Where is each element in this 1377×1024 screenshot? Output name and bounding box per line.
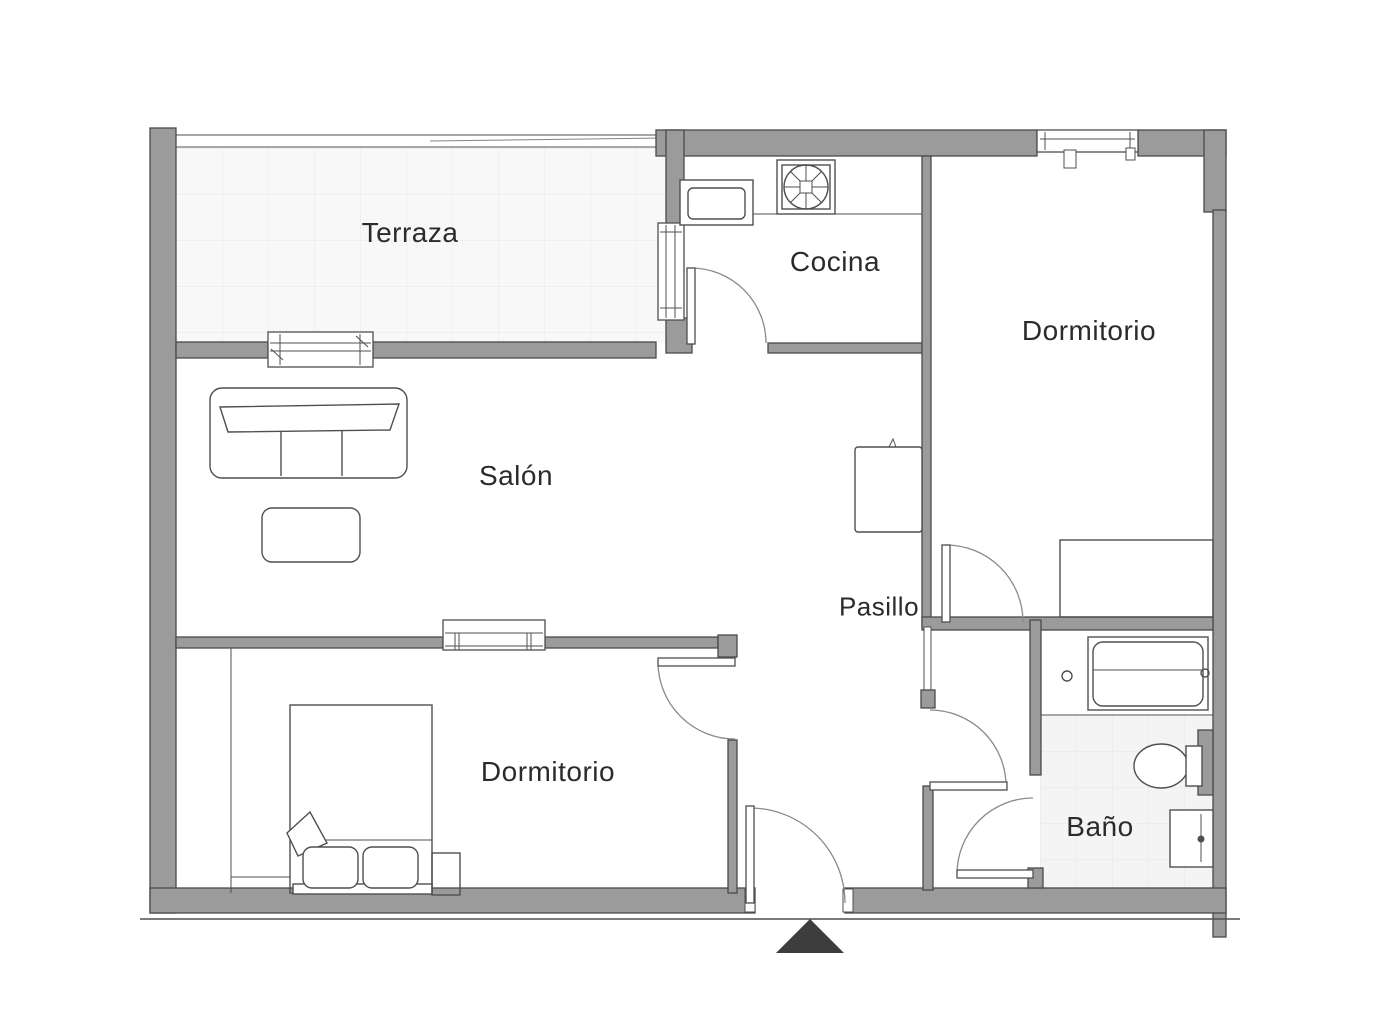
living-bedroom-window xyxy=(443,620,545,650)
room-label-bano: Baño xyxy=(1066,811,1133,843)
balcony-railing xyxy=(176,135,664,147)
room-label-terraza: Terraza xyxy=(362,217,459,249)
entrance-door xyxy=(745,806,853,912)
toilet xyxy=(1134,744,1202,788)
tap xyxy=(1062,671,1072,681)
floor-plan-drawing xyxy=(0,0,1377,1024)
bathtub xyxy=(1062,637,1209,710)
bed-cushion xyxy=(303,847,358,888)
dresser xyxy=(1060,540,1213,617)
hallway-vestibule-door xyxy=(930,710,1007,790)
cooktop xyxy=(777,160,835,214)
coffee-table xyxy=(262,508,360,562)
room-label-pasillo: Pasillo xyxy=(839,592,919,623)
right-wall-upper xyxy=(1204,130,1226,212)
washbasin xyxy=(1170,810,1213,867)
bedroom-window xyxy=(1037,130,1138,168)
toilet-tank xyxy=(1186,746,1202,786)
room-label-cocina: Cocina xyxy=(790,246,880,278)
left-wall xyxy=(150,128,176,913)
floor-plan: Terraza Cocina Dormitorio Salón Pasillo … xyxy=(0,0,1377,1024)
kitchen-sink xyxy=(680,180,753,225)
bottom-wall-right xyxy=(845,888,1226,913)
kitchen-door xyxy=(687,268,766,344)
sofa xyxy=(210,388,407,478)
double-bed xyxy=(287,705,432,894)
bedroom-secundario-door xyxy=(658,658,735,739)
doors xyxy=(658,268,1033,912)
top-wall-left xyxy=(656,130,1037,156)
kitchen-terrace-window xyxy=(658,223,684,320)
bathroom-door xyxy=(957,798,1033,878)
right-wall-lower xyxy=(1213,210,1226,937)
bedroom-principal-door xyxy=(942,545,1023,622)
bottom-wall-left xyxy=(150,888,755,913)
wardrobe xyxy=(231,648,290,893)
cabinet xyxy=(855,439,922,532)
room-label-dormitorio-secundario: Dormitorio xyxy=(481,756,615,788)
terrace-living-window xyxy=(268,332,373,367)
bed-cushion xyxy=(363,847,418,888)
entrance-marker xyxy=(776,919,844,953)
room-label-salon: Salón xyxy=(479,460,553,492)
room-label-dormitorio-principal: Dormitorio xyxy=(1022,315,1156,347)
